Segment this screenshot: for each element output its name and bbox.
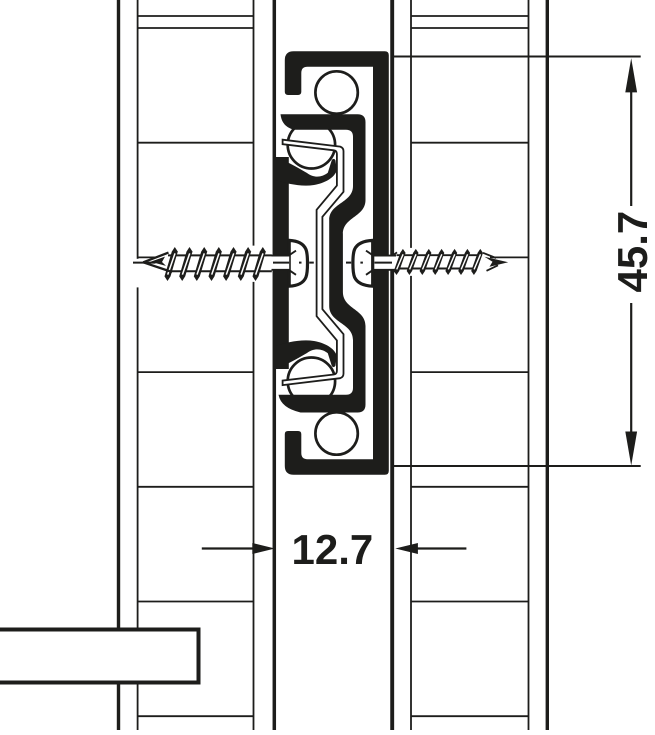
svg-text:12.7: 12.7 — [292, 526, 374, 573]
svg-text:45.7: 45.7 — [609, 211, 655, 293]
